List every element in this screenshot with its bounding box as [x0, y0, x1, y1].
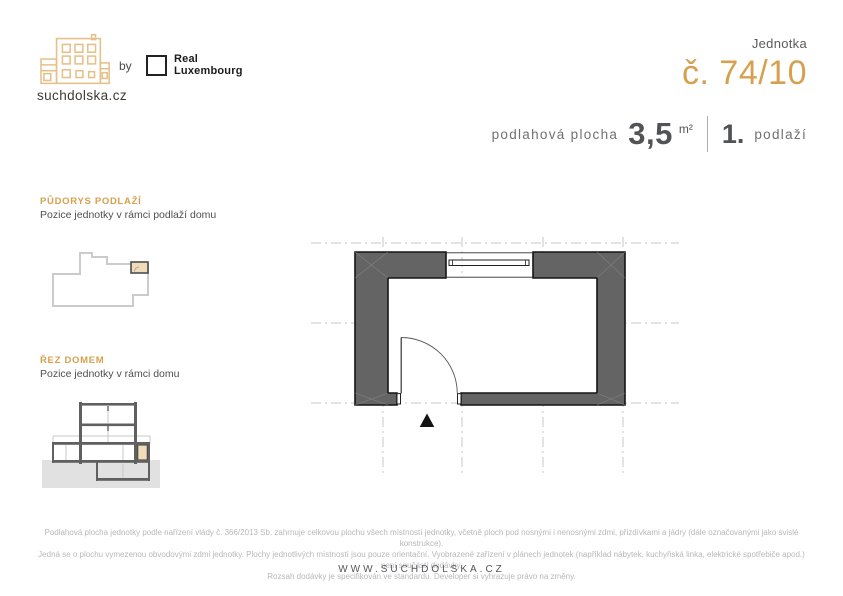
- partner-name: Real Luxembourg: [174, 54, 243, 77]
- floorplan-section-title: PŮDORYS PODLAŽÍ: [40, 196, 141, 207]
- unit-number: č. 74/10: [682, 54, 807, 93]
- floor-label: podlaží: [754, 127, 807, 142]
- floorplan-section-subtitle: Pozice jednotky v rámci podlaží domu: [40, 209, 216, 221]
- section-section-subtitle: Pozice jednotky v rámci domu: [40, 368, 179, 380]
- house-section-diagram: [38, 387, 163, 490]
- website-url: WWW.SUCHDOLSKA.CZ: [0, 564, 843, 575]
- brand-name: suchdolska.cz: [37, 88, 127, 103]
- suchdolska-building-logo-icon: [40, 34, 114, 86]
- floor-value: 1.: [722, 119, 745, 150]
- triangle-up-icon: [420, 414, 435, 428]
- area-unit: m²: [679, 122, 693, 136]
- square-frame-icon: [146, 55, 167, 76]
- disclaimer-line: Podlahová plocha jednotky podle nařízení…: [30, 527, 813, 549]
- summary-divider: [707, 116, 708, 152]
- area-label: podlahová plocha: [492, 127, 619, 142]
- section-section-title: ŘEZ DOMEM: [40, 355, 104, 366]
- window-symbol: [446, 253, 533, 277]
- unit-header: Jednotka č. 74/10: [682, 36, 807, 93]
- unit-label: Jednotka: [682, 36, 807, 51]
- main-unit-floorplan: [305, 225, 685, 480]
- by-label: by: [119, 59, 132, 73]
- unit-datasheet-page: suchdolska.cz by Real Luxembourg Jednotk…: [0, 0, 843, 596]
- partner-logo: Real Luxembourg: [146, 54, 243, 77]
- area-value: 3,5: [628, 116, 673, 152]
- unit-summary: podlahová plocha 3,5 m² 1. podlaží: [492, 116, 807, 152]
- floor-locator-diagram: [50, 249, 154, 311]
